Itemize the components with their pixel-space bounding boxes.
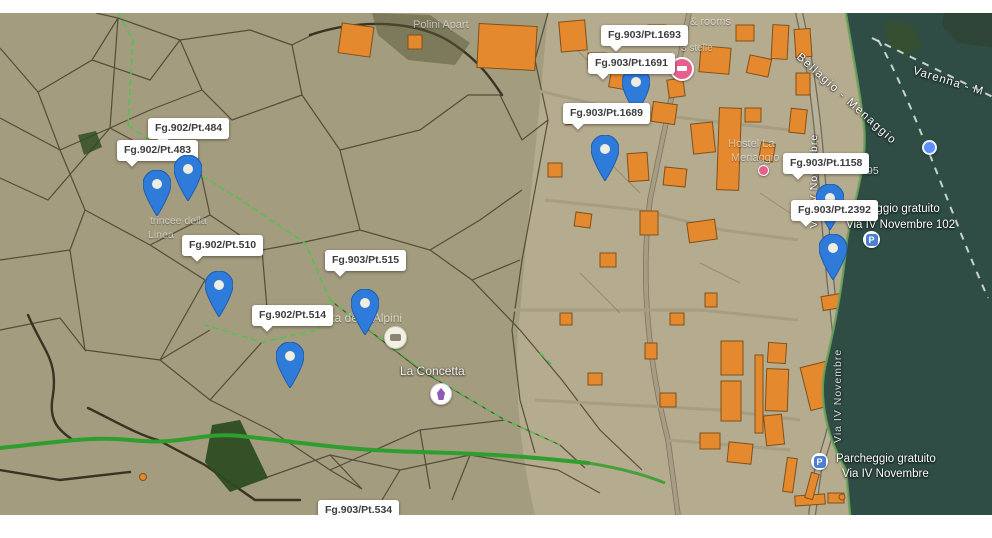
- map-pin[interactable]: [276, 342, 304, 388]
- screenshot-root: Polini Apart & rooms 3 stelle Hostel La …: [0, 0, 992, 538]
- viewpoint-icon[interactable]: [384, 326, 407, 349]
- parcel-label[interactable]: Fg.903/Pt.534: [318, 500, 399, 515]
- place-label-trincee-2: Linea: [148, 229, 174, 241]
- map-pin[interactable]: [591, 135, 619, 181]
- map-pin[interactable]: [351, 289, 379, 335]
- place-label-hostel-1: Hostel La: [728, 138, 774, 150]
- parking-p-glyph: P: [866, 234, 878, 246]
- parcel-label[interactable]: Fg.903/Pt.1693: [601, 25, 688, 46]
- map-canvas[interactable]: Polini Apart & rooms 3 stelle Hostel La …: [0, 13, 992, 515]
- parking-icon-south[interactable]: P: [811, 453, 828, 470]
- place-label-hostel-2: Menaggio: [731, 152, 779, 164]
- place-label-rooms: & rooms: [690, 16, 731, 28]
- map-pin[interactable]: [143, 170, 171, 216]
- parcel-label[interactable]: Fg.903/Pt.1691: [588, 53, 675, 74]
- map-pin[interactable]: [819, 234, 847, 280]
- map-pin[interactable]: [174, 155, 202, 201]
- parcel-label[interactable]: Fg.902/Pt.484: [148, 118, 229, 139]
- place-label-trincee-1: trincee della: [150, 215, 207, 227]
- parcel-label[interactable]: Fg.903/Pt.515: [325, 250, 406, 271]
- parking-south-label-1: Parcheggio gratuito: [836, 453, 936, 465]
- ferry-stop-icon[interactable]: [922, 140, 937, 155]
- parcel-label[interactable]: Fg.903/Pt.2392: [791, 200, 878, 221]
- street-label-via-iv-novembre-2: Via IV Novembre: [832, 313, 844, 443]
- parcel-label[interactable]: Fg.903/Pt.1689: [563, 103, 650, 124]
- place-label-polini: Polini Apart: [413, 19, 469, 31]
- parking-p-glyph: P: [814, 456, 826, 468]
- place-label-concetta: La Concetta: [400, 364, 465, 378]
- parcel-label[interactable]: Fg.902/Pt.514: [252, 305, 333, 326]
- parking-icon-north[interactable]: P: [863, 231, 880, 248]
- church-icon[interactable]: [430, 383, 452, 405]
- map-pin[interactable]: [205, 271, 233, 317]
- parcel-label[interactable]: Fg.903/Pt.1158: [783, 153, 869, 174]
- parcel-label[interactable]: Fg.902/Pt.510: [182, 235, 263, 256]
- hotel-icon-small[interactable]: [758, 165, 769, 176]
- parking-north-label-2: Via IV Novembre 102: [846, 219, 955, 231]
- parking-south-label-2: Via IV Novembre: [842, 468, 929, 480]
